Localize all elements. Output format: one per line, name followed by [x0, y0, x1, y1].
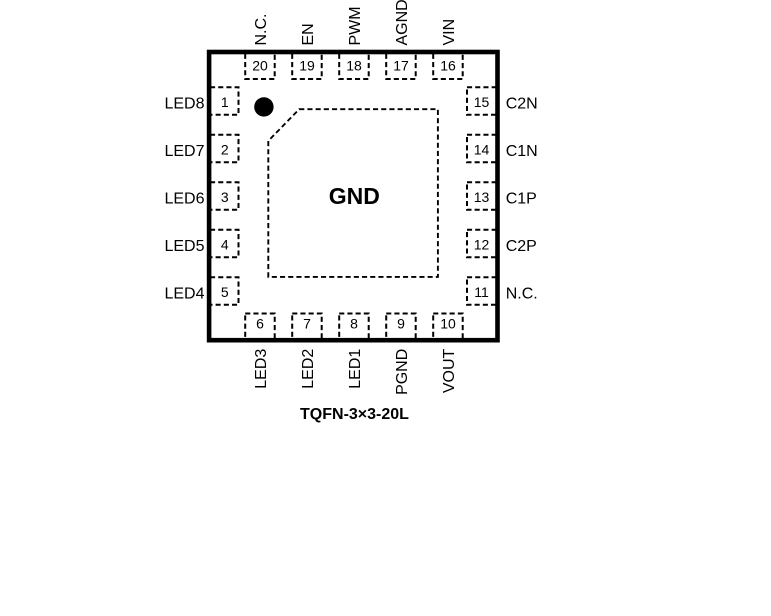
- svg-text:17: 17: [393, 57, 409, 73]
- svg-text:VIN: VIN: [441, 19, 458, 46]
- svg-text:LED3: LED3: [253, 349, 270, 389]
- svg-text:LED1: LED1: [347, 349, 364, 389]
- svg-text:C2N: C2N: [506, 95, 538, 112]
- svg-text:GND: GND: [329, 183, 380, 209]
- svg-text:8: 8: [350, 315, 358, 331]
- svg-text:C1N: C1N: [506, 143, 538, 160]
- svg-text:19: 19: [299, 57, 315, 73]
- svg-text:AGND: AGND: [394, 0, 411, 46]
- svg-text:20: 20: [252, 57, 268, 73]
- svg-text:11: 11: [474, 284, 489, 300]
- svg-text:3: 3: [221, 189, 229, 205]
- svg-text:C1P: C1P: [506, 190, 537, 207]
- svg-text:EN: EN: [300, 23, 317, 45]
- svg-text:18: 18: [346, 57, 362, 73]
- svg-text:1: 1: [221, 94, 229, 110]
- svg-text:9: 9: [397, 315, 405, 331]
- svg-text:LED5: LED5: [164, 238, 204, 255]
- svg-text:PWM: PWM: [347, 6, 364, 45]
- svg-text:13: 13: [474, 189, 490, 205]
- svg-text:7: 7: [303, 315, 311, 331]
- svg-text:14: 14: [474, 142, 490, 158]
- svg-text:12: 12: [474, 237, 490, 253]
- svg-text:LED4: LED4: [164, 285, 204, 302]
- svg-text:2: 2: [221, 142, 229, 158]
- svg-text:VOUT: VOUT: [441, 348, 458, 393]
- svg-text:10: 10: [440, 315, 456, 331]
- svg-text:LED8: LED8: [164, 95, 204, 112]
- svg-text:C2P: C2P: [506, 238, 537, 255]
- svg-text:LED2: LED2: [300, 349, 317, 389]
- svg-text:N.C.: N.C.: [253, 14, 270, 46]
- svg-text:PGND: PGND: [394, 349, 411, 395]
- svg-text:LED7: LED7: [164, 143, 204, 160]
- svg-text:LED6: LED6: [164, 190, 204, 207]
- svg-text:16: 16: [440, 57, 456, 73]
- svg-text:4: 4: [221, 237, 229, 253]
- svg-text:N.C.: N.C.: [506, 285, 538, 302]
- svg-text:15: 15: [474, 94, 490, 110]
- svg-text:TQFN-3×3-20L: TQFN-3×3-20L: [300, 406, 409, 423]
- svg-text:6: 6: [256, 315, 264, 331]
- svg-text:5: 5: [221, 284, 229, 300]
